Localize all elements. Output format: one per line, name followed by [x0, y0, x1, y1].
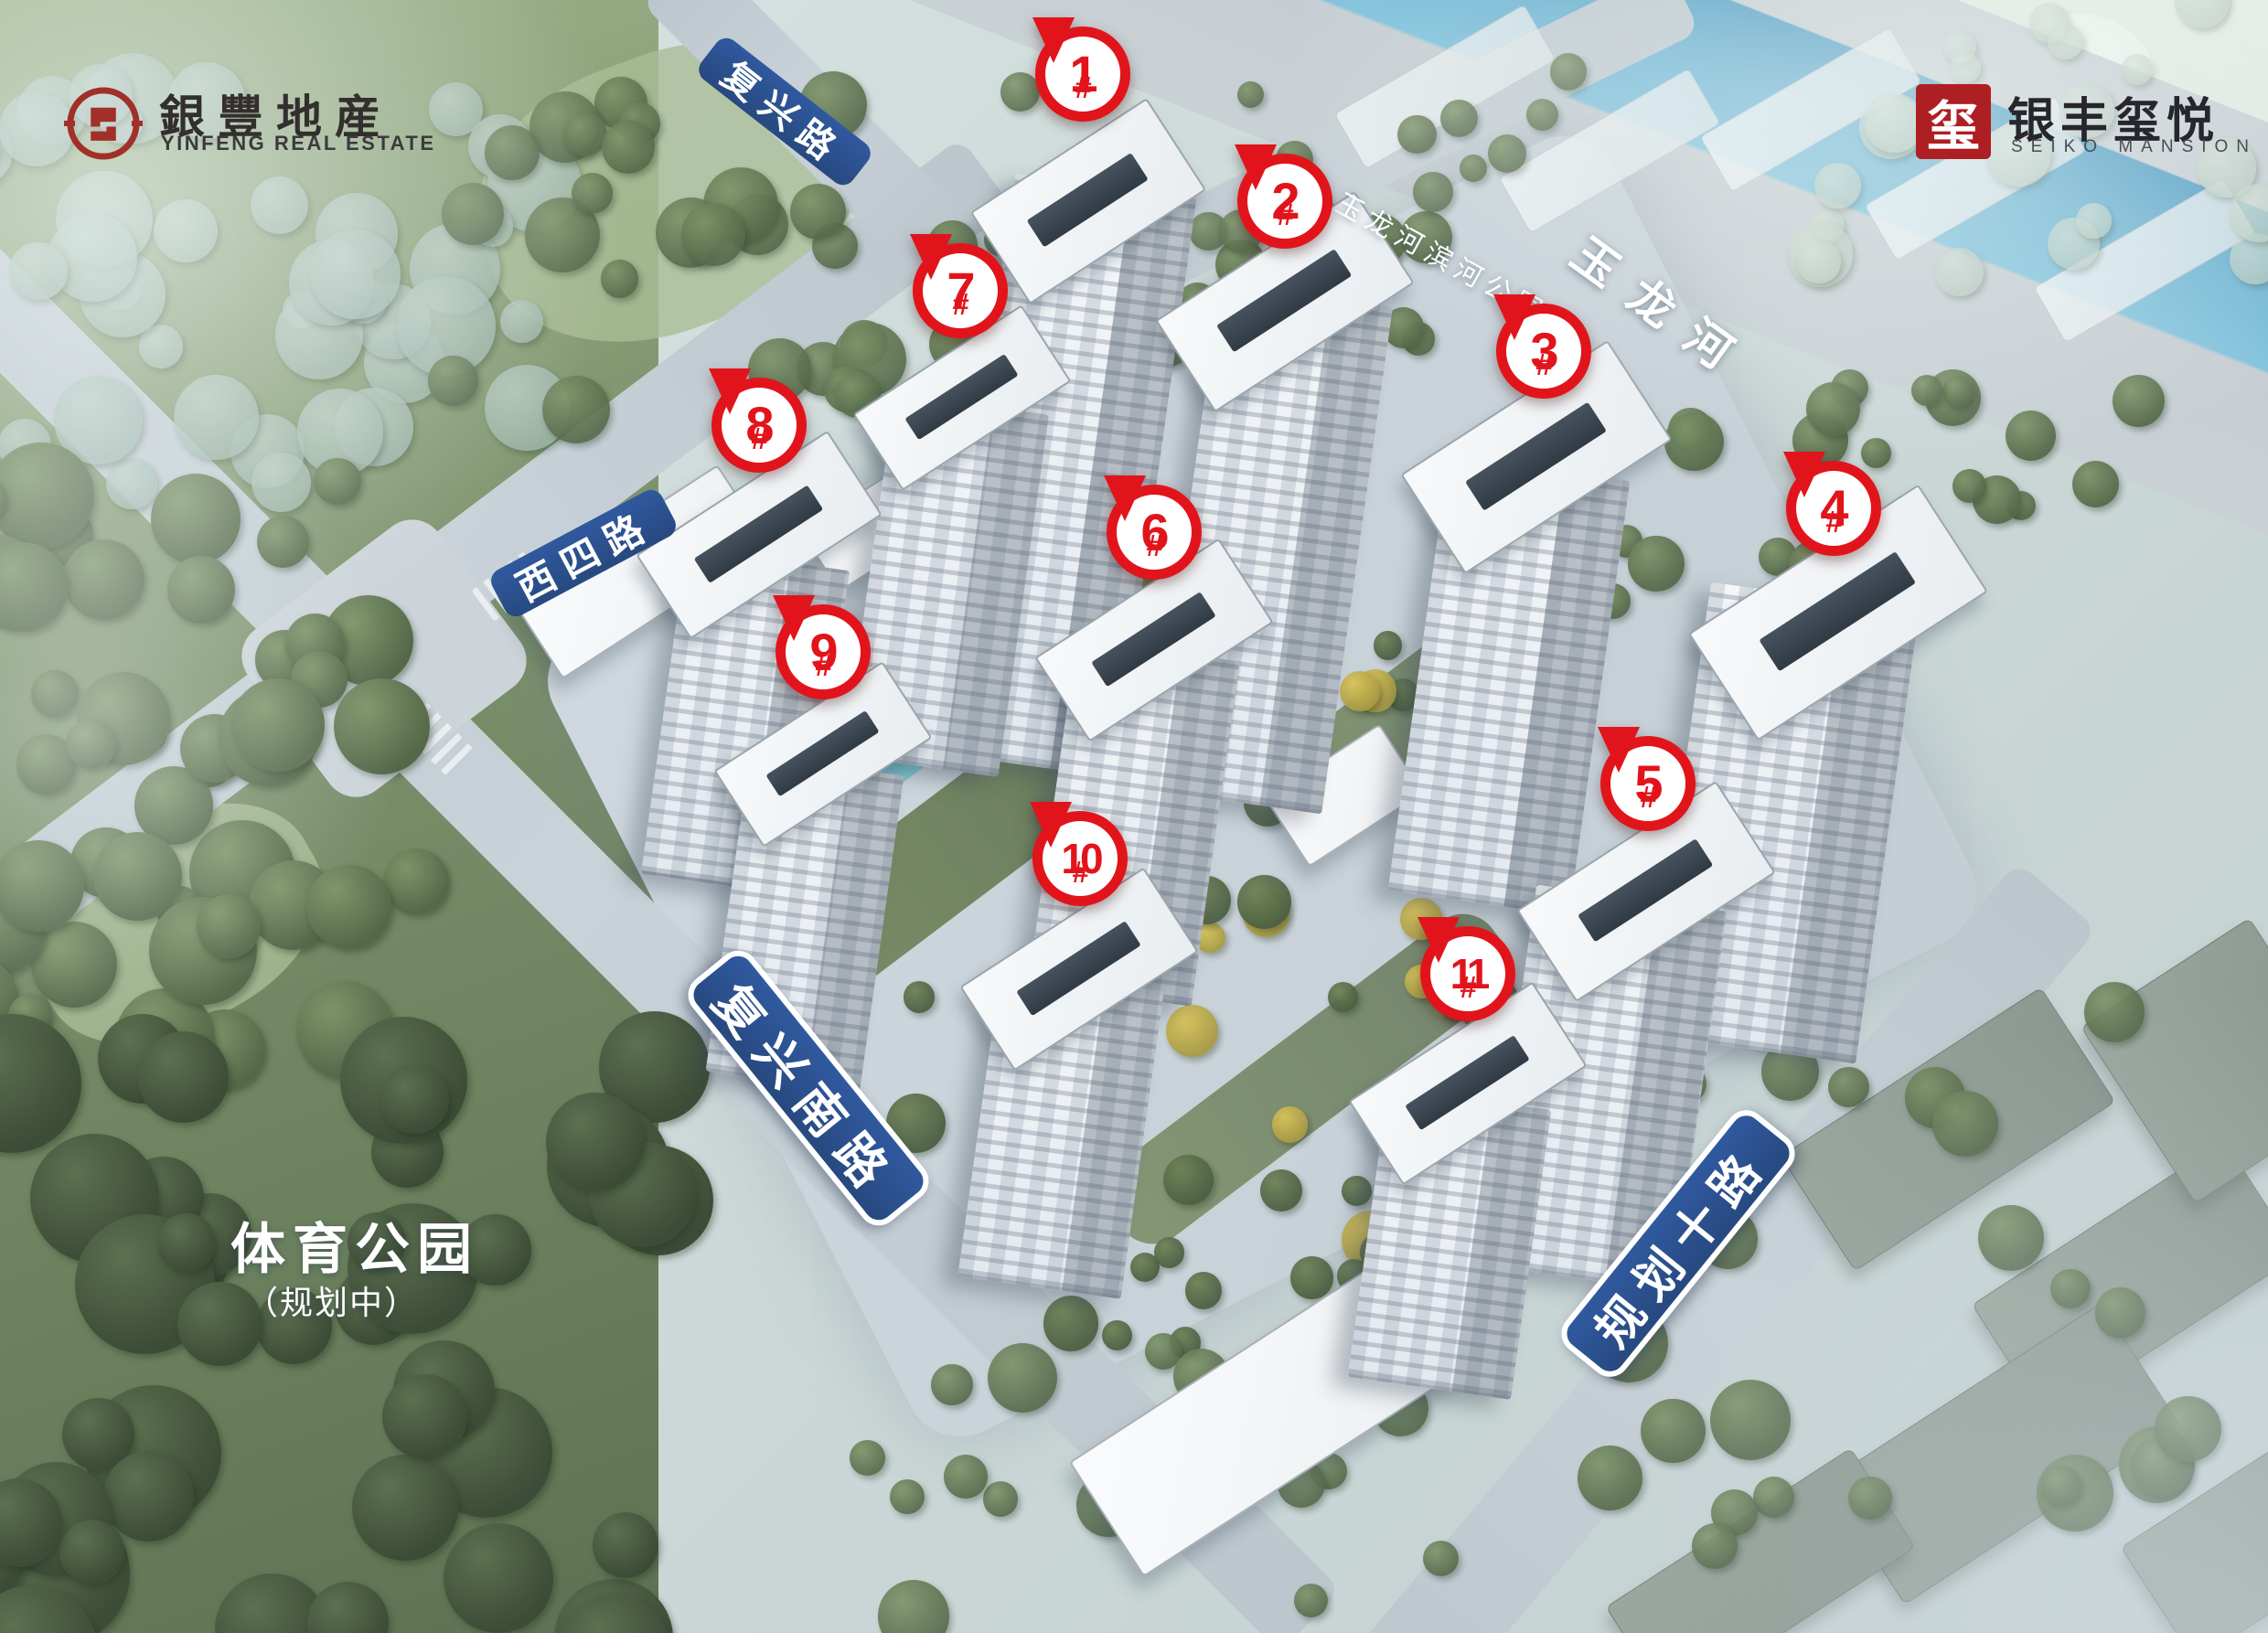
project-seal-icon: 玺 — [1916, 84, 1991, 159]
pin-tail — [709, 368, 751, 414]
developer-name-en: YINFENG REAL ESTATE — [161, 132, 436, 155]
pin-hash: # — [1146, 530, 1162, 560]
masterplan-rendering: 复兴路 西四路 复兴南路 规划十路 玉龙河 玉龙河滨河公园 体育公园 （规划中）… — [0, 0, 2268, 1633]
pin-tail — [1032, 17, 1075, 63]
pin-hash: # — [1072, 857, 1088, 887]
pin-hash: # — [751, 423, 767, 454]
pin-tail — [1104, 475, 1146, 521]
pin-tail — [1493, 294, 1535, 340]
developer-seal-icon — [64, 84, 143, 163]
developer-logo: 銀豐地産 YINFENG REAL ESTATE — [64, 80, 430, 172]
pin-tail — [910, 234, 952, 280]
pin-hash: # — [1460, 972, 1476, 1002]
pin-tail — [1235, 144, 1277, 190]
pin-hash: # — [1277, 199, 1293, 229]
pin-hash: # — [1075, 72, 1091, 102]
pin-tail — [1417, 917, 1460, 963]
pin-hash: # — [1640, 782, 1656, 812]
pin-hash: # — [815, 650, 831, 680]
pin-hash: # — [1825, 507, 1842, 537]
pin-tail — [1030, 802, 1072, 848]
pin-hash: # — [952, 289, 968, 319]
pin-tail — [1598, 727, 1640, 773]
pin-hash: # — [1535, 349, 1552, 379]
project-name-en: SEIKO MANSION — [2011, 137, 2257, 157]
pin-tail — [1783, 452, 1825, 497]
pin-tail — [773, 595, 815, 641]
project-logo: 玺 银丰玺悦 SEIKO MANSION — [1916, 80, 2245, 172]
